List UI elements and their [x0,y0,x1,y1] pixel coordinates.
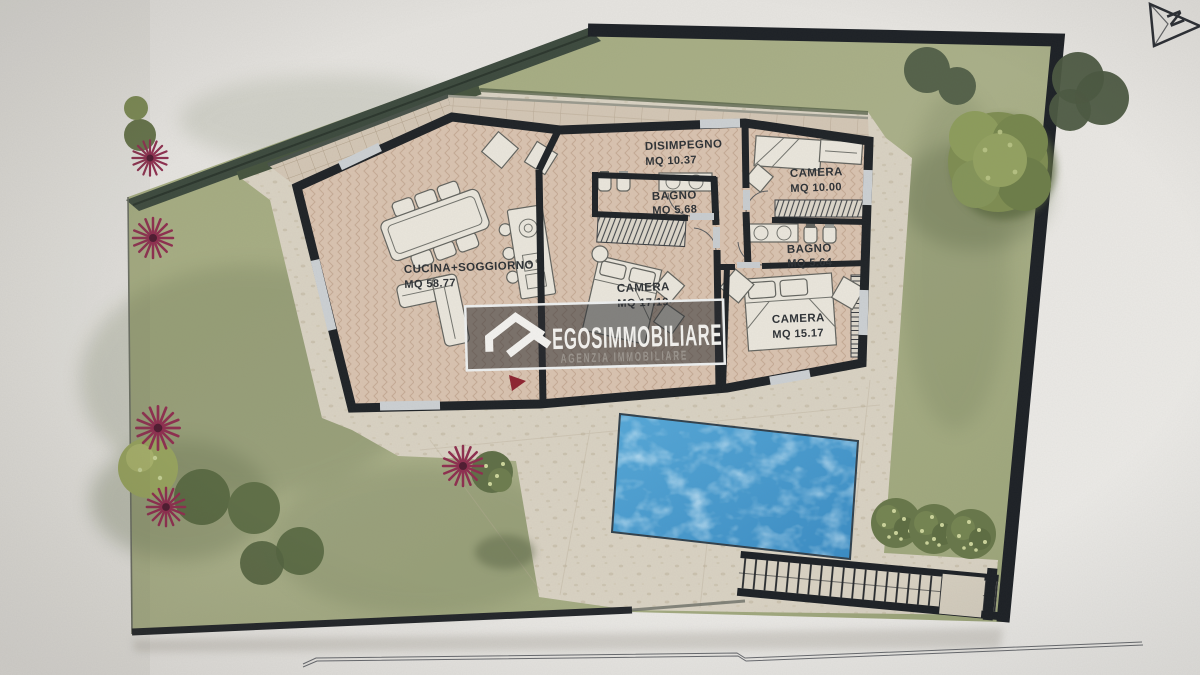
vignette [0,0,1200,675]
site-plan-image: CUCINA+SOGGIORNO MQ 58.77 DISIMPEGNO MQ … [0,0,1200,675]
left-shade [0,0,150,675]
